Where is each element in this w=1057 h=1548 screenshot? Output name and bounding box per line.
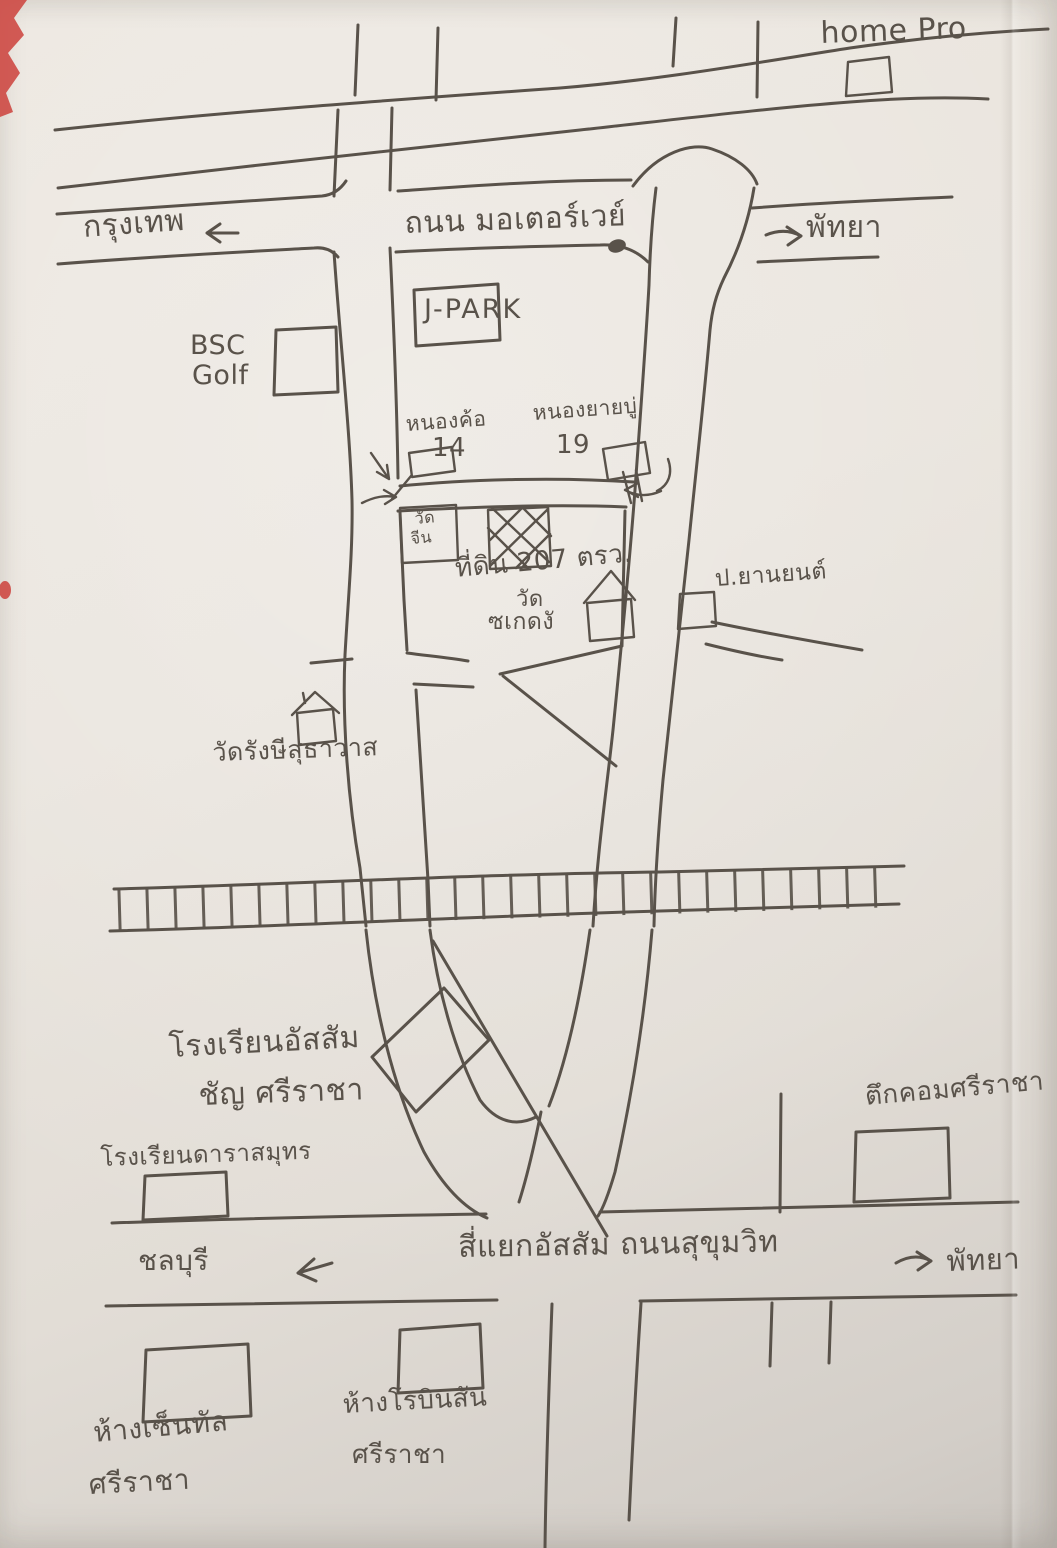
label-assumption-2: ชัญ ศรีราชา (198, 1074, 364, 1111)
road-hook (657, 459, 670, 491)
red-edge-mark (0, 0, 27, 599)
label-soi19-number: 19 (556, 432, 590, 459)
arrow-right-pattaya-bottom-icon (896, 1252, 931, 1270)
arrow-down-left-icon (371, 453, 389, 479)
arrow-right-pattaya-top-icon (766, 227, 801, 245)
darasamut-box (143, 1172, 228, 1220)
label-bsc: BSC (190, 332, 246, 360)
label-chonburi: ชลบุรี (138, 1246, 209, 1275)
label-wat-rangsi: วัดรังษีสุธาวาส (212, 734, 379, 766)
label-wat-chin-1: วัด (414, 509, 436, 528)
label-bangkok: กรุงเทพ (82, 205, 186, 244)
hand-drawn-map: home Pro กรุงเทพ ถนน มอเตอร์เวย์ พัทยา J… (0, 0, 1057, 1548)
label-j-park: J-PARK (424, 296, 522, 324)
label-wat-sakedong-1: วัด (516, 588, 544, 611)
arrow-left-icon (625, 483, 661, 497)
label-pattaya-bottom: พัทยา (946, 1243, 1021, 1276)
label-motorway: ถนน มอเตอร์เวย์ (404, 200, 627, 239)
home-pro-box (846, 57, 892, 96)
ink-blob (607, 237, 628, 254)
side-roads (311, 622, 862, 766)
railway (110, 866, 904, 931)
railway-ties (118, 886, 898, 909)
tukcom-box (854, 1128, 950, 1202)
label-wat-chin-2: จีน (410, 529, 433, 548)
arrow-right-icon (362, 490, 396, 504)
label-home-pro: home Pro (820, 13, 967, 50)
label-central-2: ศรีราชา (88, 1465, 191, 1500)
label-wat-sakedong-2: ซเกดงั (488, 610, 554, 634)
label-robinson-2: ศรีราชา (352, 1442, 446, 1469)
top-road (55, 29, 1048, 188)
label-soi14-name: หนองค้อ (405, 407, 487, 435)
south-road (545, 1094, 831, 1548)
arrow-left-chonburi-icon (298, 1259, 332, 1281)
bsc-golf-box (274, 327, 338, 395)
lower-junction (366, 930, 652, 1236)
label-assum-intersection: สี่แยกอัสสัม ถนนสุขุมวิท (458, 1226, 779, 1263)
label-pattaya-top: พัทยา (806, 212, 882, 244)
label-soi14-number: 14 (432, 435, 466, 462)
arrow-left-bangkok-icon (207, 224, 238, 242)
motorway-interchange (633, 147, 757, 186)
label-golf: Golf (192, 362, 248, 390)
